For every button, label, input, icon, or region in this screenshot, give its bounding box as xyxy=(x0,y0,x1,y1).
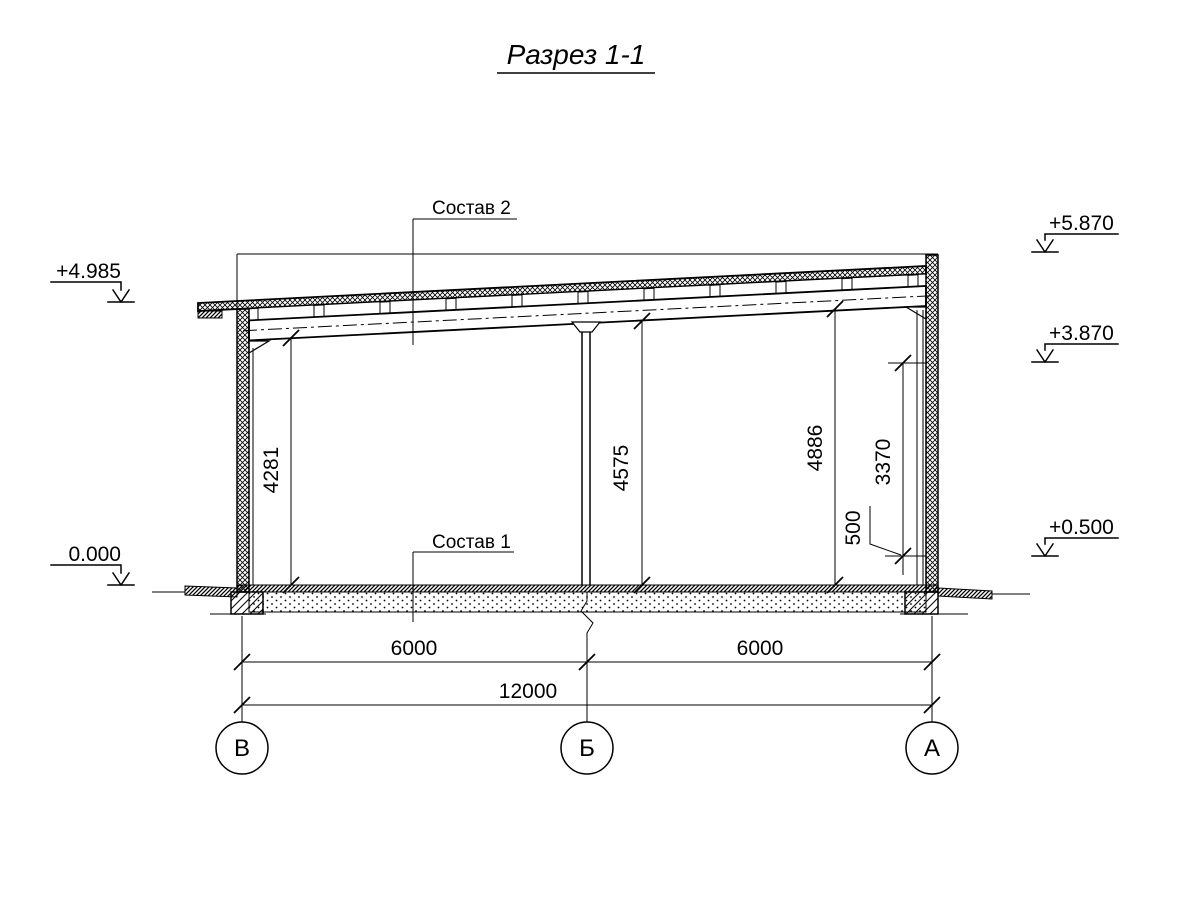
apron-right xyxy=(938,588,992,599)
dim-text-left-clear: 4281 xyxy=(260,447,283,494)
elevation-left-roof-symbol xyxy=(51,282,134,302)
dim-leader-500 xyxy=(870,506,901,555)
elevation-right-top: +5.870 xyxy=(1032,212,1118,252)
title-text: Разрез 1-1 xyxy=(507,39,646,70)
axis-label-right: А xyxy=(924,735,940,762)
beam-bracket-left xyxy=(249,341,269,353)
elevation-left-roof: +4.985 xyxy=(51,260,134,302)
dim-text-wall-inner: 3370 xyxy=(872,439,895,486)
dim-text-total: 12000 xyxy=(499,680,557,703)
floor-composition-label: Состав 1 xyxy=(432,532,511,553)
elevation-ground-symbol xyxy=(51,565,134,585)
axis-label-middle: Б xyxy=(579,735,595,762)
roof-composition-label: Состав 2 xyxy=(432,198,511,219)
elevation-ground-value: 0.000 xyxy=(68,543,121,566)
floor-assembly xyxy=(152,585,1030,614)
dim-text-bay2: 6000 xyxy=(737,637,784,660)
right-wall xyxy=(926,255,938,592)
elevation-left-roof-value: +4.985 xyxy=(56,260,121,283)
dim-text-mid-clear: 4575 xyxy=(610,445,633,492)
elevation-right-plinth-value: +0.500 xyxy=(1049,516,1114,539)
foundation-right xyxy=(905,592,938,614)
elevation-marks: +4.985 0.000 +5.870 +3.870 +0.500 xyxy=(51,212,1118,585)
vertical-dimensions: 4281 4575 4886 3370 500 xyxy=(260,301,926,593)
elevation-right-beam-value: +3.870 xyxy=(1049,322,1114,345)
middle-column-capital xyxy=(572,322,600,332)
dim-text-right-clear: 4886 xyxy=(804,425,827,472)
drawing-title: Разрез 1-1 xyxy=(497,39,655,73)
section-drawing: Разрез 1-1 xyxy=(0,0,1200,900)
left-wall xyxy=(237,309,249,592)
axis-label-left: В xyxy=(234,735,250,762)
elevation-right-plinth: +0.500 xyxy=(1032,516,1118,556)
apron-left xyxy=(185,586,237,597)
elevation-ground: 0.000 xyxy=(51,543,134,585)
elevation-right-plinth-symbol xyxy=(1032,538,1118,556)
elevation-right-beam: +3.870 xyxy=(1032,322,1118,362)
axis-bubbles: В Б А xyxy=(216,722,958,774)
drawing-sheet: Разрез 1-1 xyxy=(0,0,1200,900)
elevation-right-top-value: +5.870 xyxy=(1049,212,1114,235)
composition-callouts: Состав 2 Состав 1 xyxy=(413,198,517,622)
eaves-fascia xyxy=(198,311,222,318)
roof-assembly xyxy=(198,254,938,353)
dim-text-bay1: 6000 xyxy=(391,637,438,660)
elevation-right-top-symbol xyxy=(1032,234,1118,252)
elevation-right-beam-symbol xyxy=(1032,344,1118,362)
dim-text-plinth: 500 xyxy=(842,510,865,545)
